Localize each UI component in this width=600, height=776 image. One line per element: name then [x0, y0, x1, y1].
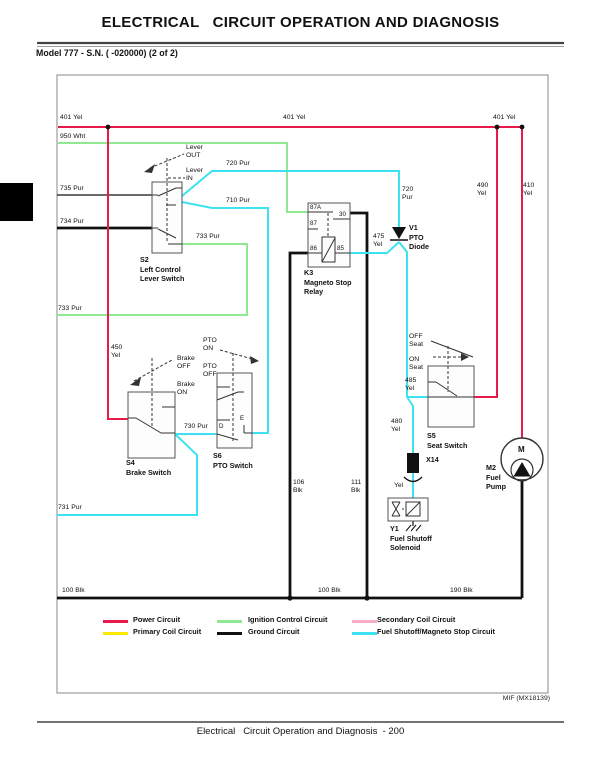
wire-label-100-blk-mid: 100 Blk: [318, 587, 341, 595]
v1-label: V1 PTO Diode: [409, 223, 429, 252]
wire-label-yel-x14: Yel: [394, 482, 403, 490]
terminal-85: 85: [337, 246, 344, 253]
terminal-30: 30: [339, 212, 346, 219]
wire-label-731-pur: 731 Pur: [58, 504, 82, 512]
s2-label: S2 Left Control Lever Switch: [140, 255, 184, 284]
terminal-86: 86: [310, 246, 317, 253]
wire-label-485-yel: 485 Yel: [405, 377, 416, 394]
wire-label-710-pur: 710 Pur: [226, 197, 250, 205]
k3-label: K3 Magneto Stop Relay: [304, 268, 352, 297]
pto-on-annotation: PTO ON: [203, 337, 217, 354]
wire-label-734-pur: 734 Pur: [60, 218, 84, 226]
legend-label-fuel-shutoff: Fuel Shutoff/Magneto Stop Circuit: [377, 628, 495, 636]
wire-label-735-pur: 735 Pur: [60, 185, 84, 193]
wire-label-401-yel-mid: 401 Yel: [283, 114, 305, 122]
wire-label-480-yel: 480 Yel: [391, 418, 402, 435]
x14-label: X14: [426, 455, 439, 465]
seat-on-annotation: ON Seat: [409, 356, 423, 373]
wire-label-720-pur-diode: 720 Pur: [402, 186, 413, 203]
wire-label-950-wht: 950 Wht: [60, 133, 85, 141]
wire-label-490-yel: 490 Yel: [477, 182, 488, 199]
seat-off-annotation: OFF Seat: [409, 333, 423, 350]
wire-label-111-blk: 111 Blk: [351, 479, 361, 496]
wire-label-475-yel: 475 Yel: [373, 233, 384, 250]
s6-label: S6 PTO Switch: [213, 451, 253, 470]
legend-swatch-ignition: [217, 620, 242, 623]
m2-label: M2 Fuel Pump: [486, 463, 506, 492]
lever-out-annotation: Lever OUT: [186, 144, 203, 161]
motor-m-label: M: [518, 445, 525, 456]
wire-label-190-blk: 190 Blk: [450, 587, 473, 595]
legend-label-ground: Ground Circuit: [248, 628, 299, 636]
legend-label-primary: Primary Coil Circuit: [133, 628, 201, 636]
wire-label-733-pur-switch: 733 Pur: [196, 233, 220, 241]
legend-swatch-power: [103, 620, 128, 623]
legend-label-secondary: Secondary Coil Circuit: [377, 616, 455, 624]
page-footer: Electrical Circuit Operation and Diagnos…: [37, 727, 564, 737]
brake-off-annotation: Brake OFF: [177, 355, 195, 372]
pto-off-annotation: PTO OFF: [203, 363, 217, 380]
legend-swatch-fuel-shutoff: [352, 632, 377, 635]
s5-switch-symbol: [428, 341, 474, 427]
wire-label-401-yel-left: 401 Yel: [60, 114, 82, 122]
legend-swatch-ground: [217, 632, 242, 635]
s5-label: S5 Seat Switch: [427, 431, 467, 450]
legend-label-power: Power Circuit: [133, 616, 180, 624]
terminal-87: 87: [310, 221, 317, 228]
y1-solenoid-symbol: [388, 498, 428, 521]
wire-label-733-pur-edge: 733 Pur: [58, 305, 82, 313]
figure-reference: MIF (MX18139): [400, 695, 550, 702]
wire-label-410-yel: 410 Yel: [523, 182, 534, 199]
s4-label: S4 Brake Switch: [126, 458, 171, 477]
s4-switch-symbol: [128, 358, 175, 458]
wire-label-450-yel: 450 Yel: [111, 344, 122, 361]
wire-label-720-pur-top: 720 Pur: [226, 160, 250, 168]
wire-label-106-blk: 106 Blk: [293, 479, 304, 496]
legend-swatch-primary: [103, 632, 128, 635]
terminal-e: E: [240, 416, 244, 423]
y1-label: Y1 Fuel Shutoff Solenoid: [390, 524, 432, 553]
terminal-d: D: [219, 424, 223, 431]
wire-label-730-pur: 730 Pur: [184, 423, 208, 431]
page-edge-tab: [0, 183, 33, 221]
wire-label-401-yel-right: 401 Yel: [493, 114, 515, 122]
wire-label-100-blk-left: 100 Blk: [62, 587, 85, 595]
s2-switch-symbol: [144, 154, 185, 253]
manual-page: ELECTRICAL CIRCUIT OPERATION AND DIAGNOS…: [0, 0, 600, 776]
legend-label-ignition: Ignition Control Circuit: [248, 616, 327, 624]
terminal-87a: 87A: [310, 205, 321, 212]
legend-swatch-secondary: [352, 620, 377, 623]
brake-on-annotation: Brake ON: [177, 381, 195, 398]
lever-in-annotation: Lever IN: [186, 167, 203, 184]
v1-diode-symbol: [390, 227, 408, 240]
